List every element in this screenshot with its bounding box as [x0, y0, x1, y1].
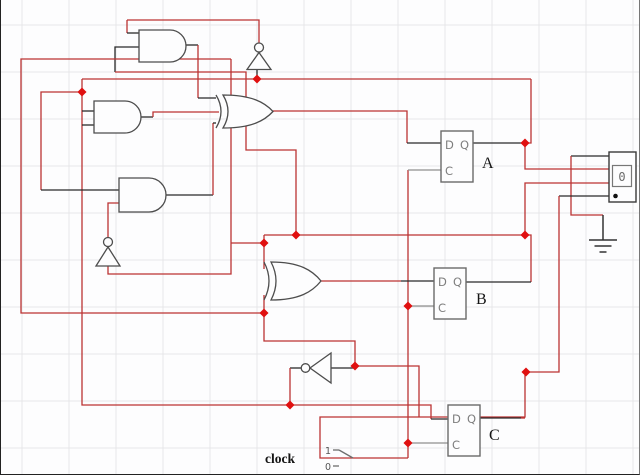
xor-gate-1[interactable] — [216, 95, 273, 128]
junction-dot — [259, 238, 268, 247]
pin-label-d: D — [438, 275, 447, 289]
junction-dot — [259, 308, 268, 317]
flipflop-label-A: A — [482, 155, 494, 172]
wire — [526, 196, 559, 372]
wire — [264, 295, 355, 366]
not-gate-3[interactable] — [301, 353, 331, 383]
and-gate-2[interactable] — [94, 101, 141, 133]
clock-input-switch[interactable]: 10 — [325, 446, 353, 473]
flipflop-A[interactable]: DQCA — [441, 131, 494, 182]
junction-dot — [403, 438, 412, 447]
pin-label-d: D — [452, 412, 461, 426]
ground-icon — [589, 215, 617, 252]
pin-label-d: D — [445, 138, 454, 152]
pin-label-q: Q — [453, 275, 462, 289]
clock-label: clock — [265, 451, 295, 466]
junction-dot — [350, 361, 359, 370]
junction-dot — [403, 301, 412, 310]
not-gate-1[interactable] — [247, 43, 271, 70]
pin-label-c: C — [452, 438, 460, 452]
switch-state-one: 1 — [325, 446, 331, 457]
junction-dot — [77, 87, 86, 96]
junction-dot — [520, 230, 529, 239]
wire — [355, 366, 419, 417]
wire — [108, 203, 119, 237]
wire — [525, 183, 609, 235]
junction-dot — [252, 74, 261, 83]
schematic-canvas: DQCADQCBDQCC010clock — [0, 0, 640, 475]
schematic-svg: DQCADQCBDQCC010clock — [1, 0, 640, 475]
xor-gate-2[interactable] — [264, 262, 321, 300]
pin-label-c: C — [438, 301, 446, 315]
junction-dot — [520, 138, 529, 147]
switch-state-zero: 0 — [325, 462, 331, 473]
junction-dot — [291, 230, 300, 239]
flipflop-label-C: C — [489, 427, 500, 444]
grid-lines — [1, 0, 640, 475]
pin-label-q: Q — [467, 412, 476, 426]
wire — [41, 92, 82, 190]
pin-label-c: C — [445, 164, 453, 178]
display-dot-icon — [613, 194, 618, 199]
junction-dot — [521, 367, 530, 376]
pin-label-q: Q — [460, 138, 469, 152]
wire — [273, 111, 407, 143]
wire — [525, 235, 531, 282]
flipflop-label-B: B — [476, 291, 487, 308]
flipflop-B[interactable]: DQCB — [434, 268, 487, 319]
and-gate-1[interactable] — [139, 30, 186, 62]
wire — [571, 156, 603, 215]
output-display[interactable]: 0 — [609, 152, 636, 202]
junction-dot — [285, 400, 294, 409]
display-value: 0 — [618, 170, 625, 184]
and-gate-3[interactable] — [119, 178, 166, 212]
